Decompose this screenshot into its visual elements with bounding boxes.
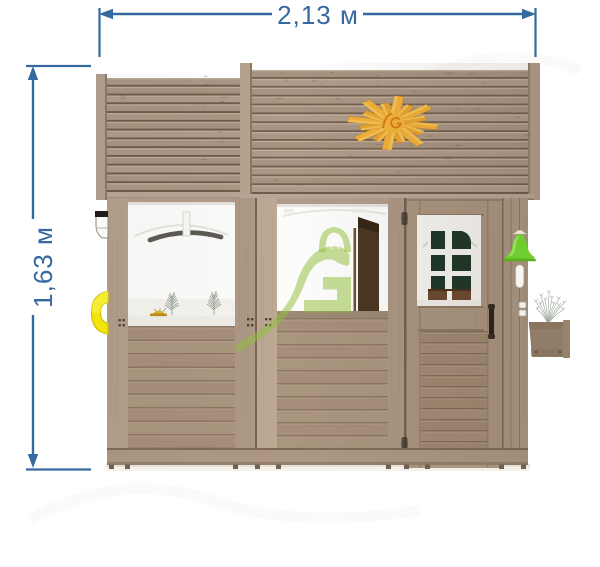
svg-text:2,13 м: 2,13 м bbox=[277, 0, 359, 30]
svg-text:1,63 м: 1,63 м bbox=[28, 226, 58, 308]
